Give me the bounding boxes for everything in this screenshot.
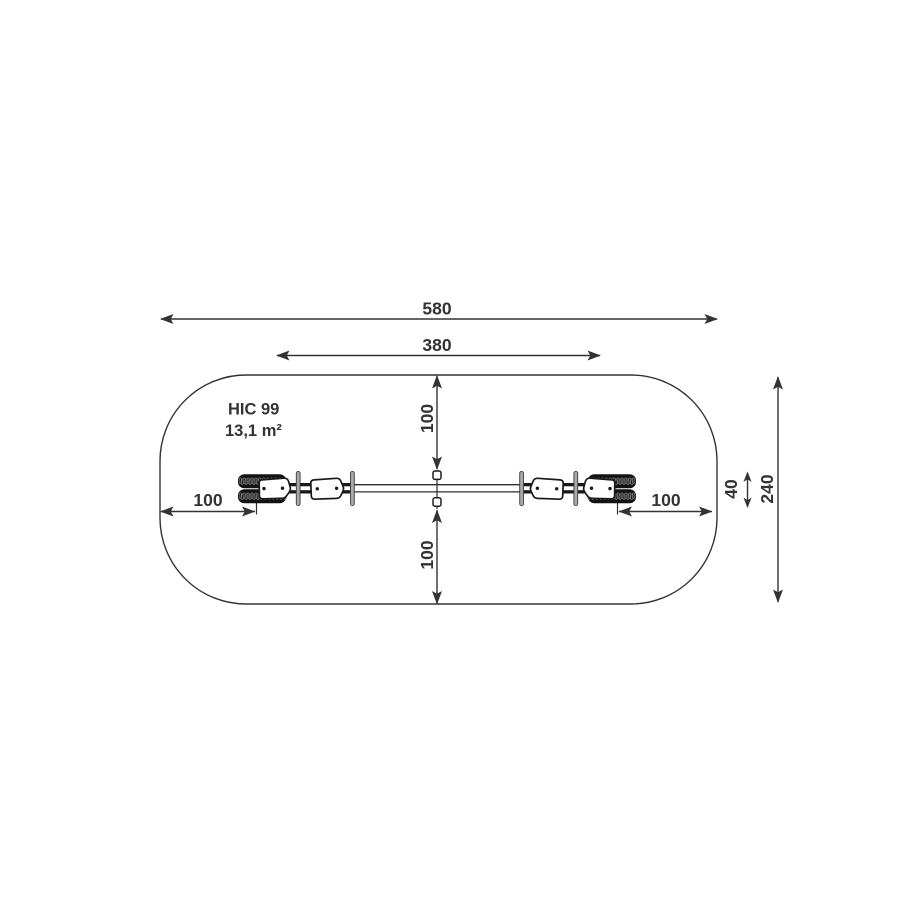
svg-text:40: 40 [721,479,741,499]
svg-text:580: 580 [422,299,451,319]
svg-text:240: 240 [757,474,777,503]
svg-text:13,1 m²: 13,1 m² [225,422,282,440]
svg-text:380: 380 [422,335,451,355]
svg-text:100: 100 [417,540,437,569]
svg-text:100: 100 [651,490,680,510]
svg-text:100: 100 [193,490,222,510]
svg-text:HIC 99: HIC 99 [228,401,279,419]
svg-text:100: 100 [417,404,437,433]
